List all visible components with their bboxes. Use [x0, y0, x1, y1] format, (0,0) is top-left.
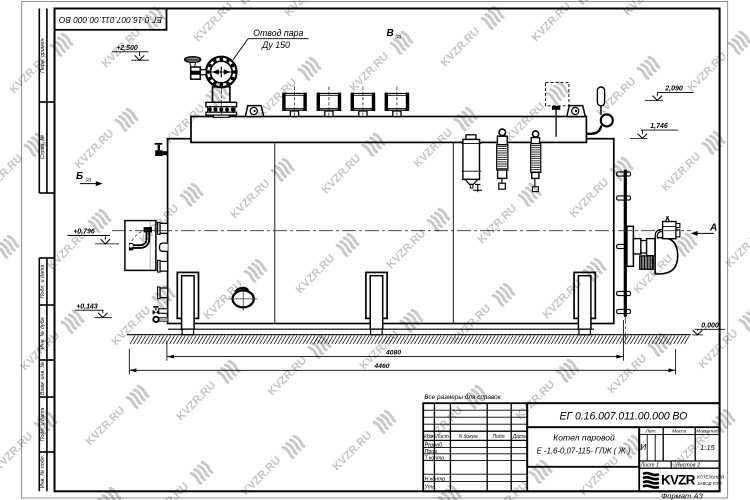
svg-text:+0,143: +0,143 [76, 303, 98, 310]
svg-text:Н.контр.: Н.контр. [425, 476, 447, 482]
svg-text:(2): (2) [86, 177, 92, 182]
svg-text:N докум.: N докум. [459, 434, 479, 440]
svg-text:Ду 150: Ду 150 [261, 40, 290, 50]
svg-text:Формат А3: Формат А3 [661, 492, 703, 500]
svg-text:Масса: Масса [672, 429, 687, 435]
svg-text:Отвод пара: Отвод пара [253, 28, 303, 38]
svg-text:Подп. и дата: Подп. и дата [40, 265, 46, 299]
svg-text:KVZR: KVZR [661, 473, 696, 488]
svg-text:Лит.: Лит. [645, 429, 657, 435]
svg-text:Т.контр.: Т.контр. [425, 455, 446, 461]
svg-text:В: В [387, 28, 394, 39]
svg-text:Б: Б [76, 171, 83, 182]
svg-text:Подп.: Подп. [493, 434, 506, 440]
svg-text:Дата: Дата [512, 434, 526, 440]
svg-text:2,090: 2,090 [664, 86, 683, 93]
svg-text:Е -1,6-0,07-115- ГЛЖ ( Ж ): Е -1,6-0,07-115- ГЛЖ ( Ж ) [537, 447, 631, 456]
svg-text:0,000: 0,000 [701, 322, 719, 329]
svg-text:Утв.: Утв. [425, 485, 437, 491]
svg-text:Котел паровой: Котел паровой [553, 433, 615, 443]
svg-text:Взам. инв. №: Взам. инв. № [40, 362, 46, 396]
svg-text:ЗАВОД РЭП: ЗАВОД РЭП [697, 481, 723, 486]
svg-text:Инв. № подл.: Инв. № подл. [40, 455, 46, 488]
svg-text:Пров.: Пров. [425, 449, 439, 455]
svg-text:Лист 1: Лист 1 [640, 462, 659, 468]
svg-text:4460: 4460 [373, 363, 389, 370]
svg-text:А: А [709, 223, 717, 234]
svg-text:КОТЕЛЬНЫЙ: КОТЕЛЬНЫЙ [697, 475, 725, 480]
svg-text:ЕГ 0.16.007.011.00.000 ВО: ЕГ 0.16.007.011.00.000 ВО [560, 411, 688, 423]
svg-text:1,746: 1,746 [650, 123, 668, 130]
svg-text:Все размеры для справок: Все размеры для справок [424, 393, 502, 401]
